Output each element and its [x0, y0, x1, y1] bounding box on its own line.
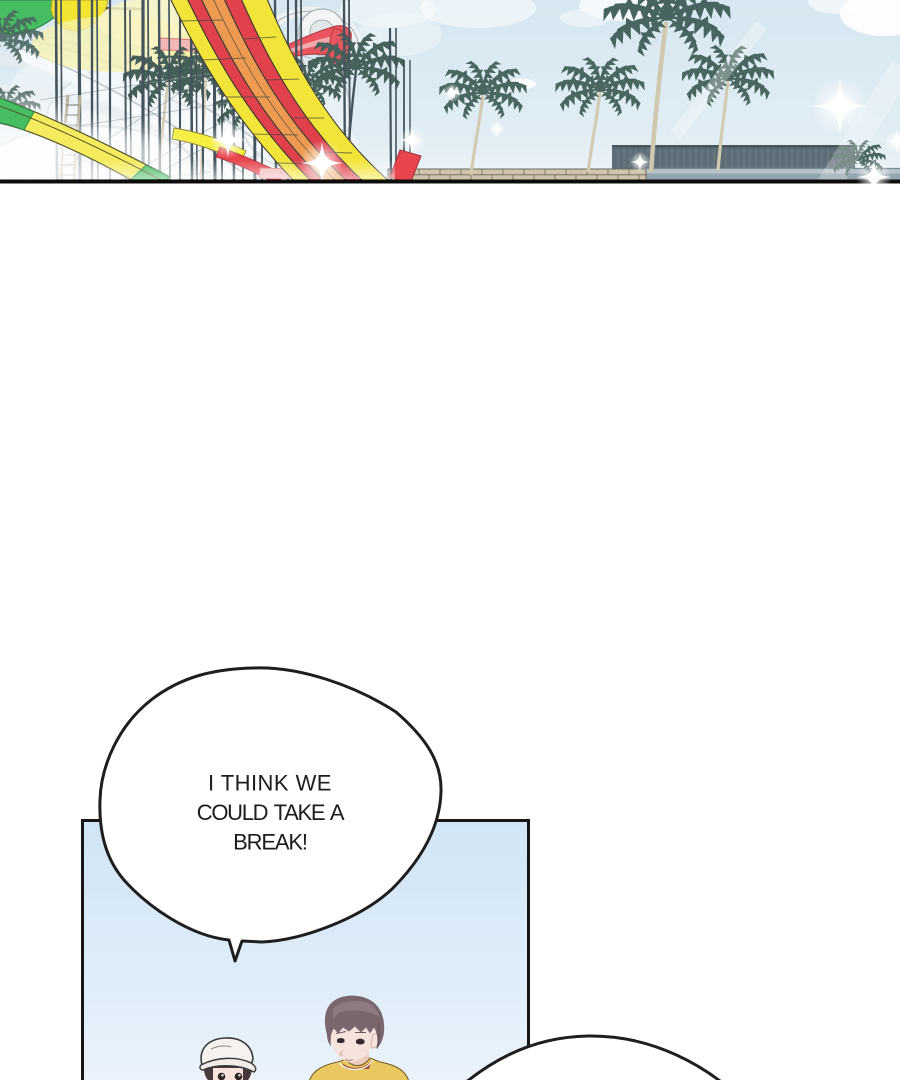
svg-text:COULD TAKE A: COULD TAKE A — [197, 800, 345, 825]
svg-text:BREAK!: BREAK! — [233, 830, 307, 855]
svg-text:I THINK WE: I THINK WE — [208, 771, 332, 796]
